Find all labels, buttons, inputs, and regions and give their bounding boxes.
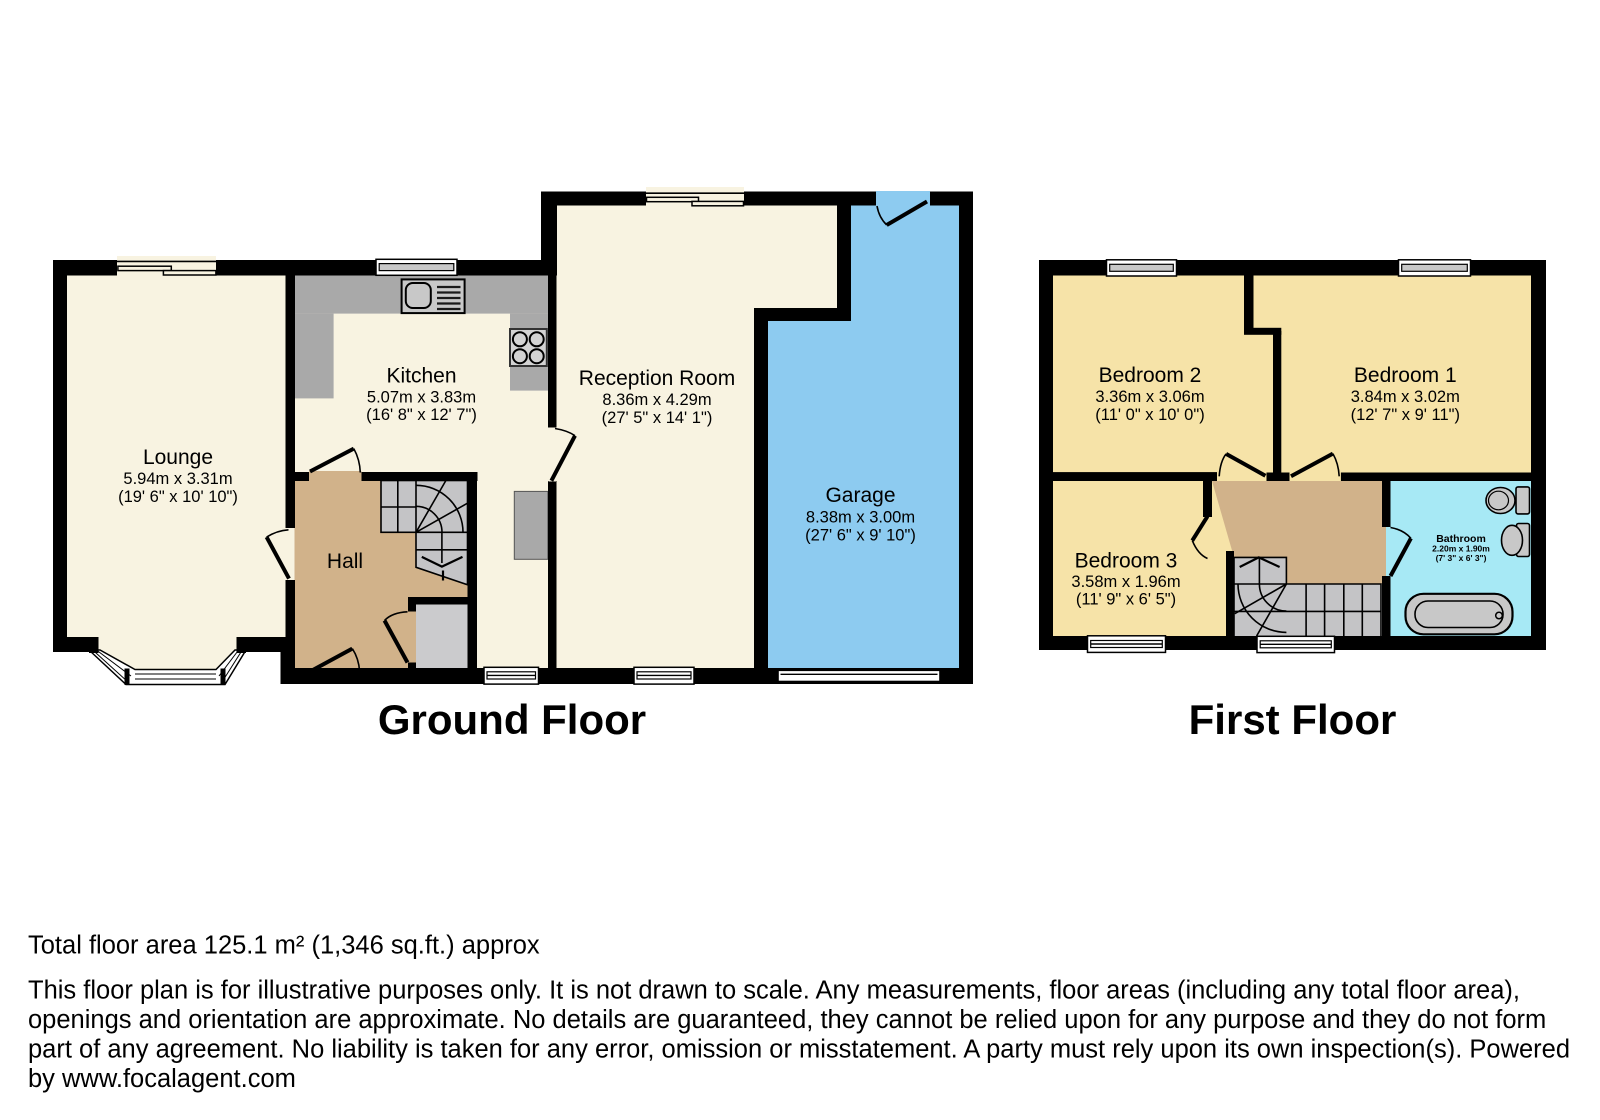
svg-text:Garage: Garage <box>825 484 895 507</box>
svg-text:Kitchen: Kitchen <box>386 365 456 388</box>
svg-text:Bedroom 2: Bedroom 2 <box>1099 364 1202 387</box>
svg-text:(27' 6" x 9' 10"): (27' 6" x 9' 10") <box>805 527 916 545</box>
svg-text:(12' 7" x 9' 11"): (12' 7" x 9' 11") <box>1351 406 1460 424</box>
svg-text:8.38m x 3.00m: 8.38m x 3.00m <box>806 509 915 527</box>
svg-text:3.58m x 1.96m: 3.58m x 1.96m <box>1071 573 1180 591</box>
svg-text:Bedroom 1: Bedroom 1 <box>1354 364 1457 387</box>
svg-text:part of any agreement. No liab: part of any agreement. No liability is t… <box>28 1036 1570 1064</box>
svg-text:First Floor: First Floor <box>1189 696 1397 743</box>
svg-text:3.36m x 3.06m: 3.36m x 3.06m <box>1095 388 1204 406</box>
svg-text:(27' 5" x 14' 1"): (27' 5" x 14' 1") <box>602 409 713 427</box>
svg-text:by www.focalagent.com: by www.focalagent.com <box>28 1065 296 1093</box>
svg-text:Ground Floor: Ground Floor <box>378 696 646 743</box>
svg-text:3.84m x 3.02m: 3.84m x 3.02m <box>1351 388 1460 406</box>
svg-text:2.20m x 1.90m: 2.20m x 1.90m <box>1432 544 1490 554</box>
svg-text:(11' 0" x 10' 0"): (11' 0" x 10' 0") <box>1095 406 1204 424</box>
svg-text:Hall: Hall <box>327 550 363 573</box>
svg-text:Total floor area 125.1 m² (1,3: Total floor area 125.1 m² (1,346 sq.ft.)… <box>28 932 540 960</box>
svg-text:Reception Room: Reception Room <box>579 367 735 390</box>
svg-text:This floor plan is for illustr: This floor plan is for illustrative purp… <box>28 977 1520 1005</box>
svg-text:(16' 8" x 12' 7"): (16' 8" x 12' 7") <box>366 406 477 424</box>
svg-text:(19' 6" x 10' 10"): (19' 6" x 10' 10") <box>118 488 238 506</box>
svg-text:(7' 3" x 6' 3"): (7' 3" x 6' 3") <box>1436 553 1487 563</box>
svg-text:5.94m x 3.31m: 5.94m x 3.31m <box>123 470 232 488</box>
svg-text:Lounge: Lounge <box>143 446 213 469</box>
svg-text:8.36m x 4.29m: 8.36m x 4.29m <box>602 391 711 409</box>
svg-text:openings and orientation are a: openings and orientation are approximate… <box>28 1006 1546 1034</box>
svg-text:Bedroom 3: Bedroom 3 <box>1075 550 1178 573</box>
svg-text:(11' 9" x 6' 5"): (11' 9" x 6' 5") <box>1076 591 1176 609</box>
svg-text:5.07m x 3.83m: 5.07m x 3.83m <box>367 389 476 407</box>
